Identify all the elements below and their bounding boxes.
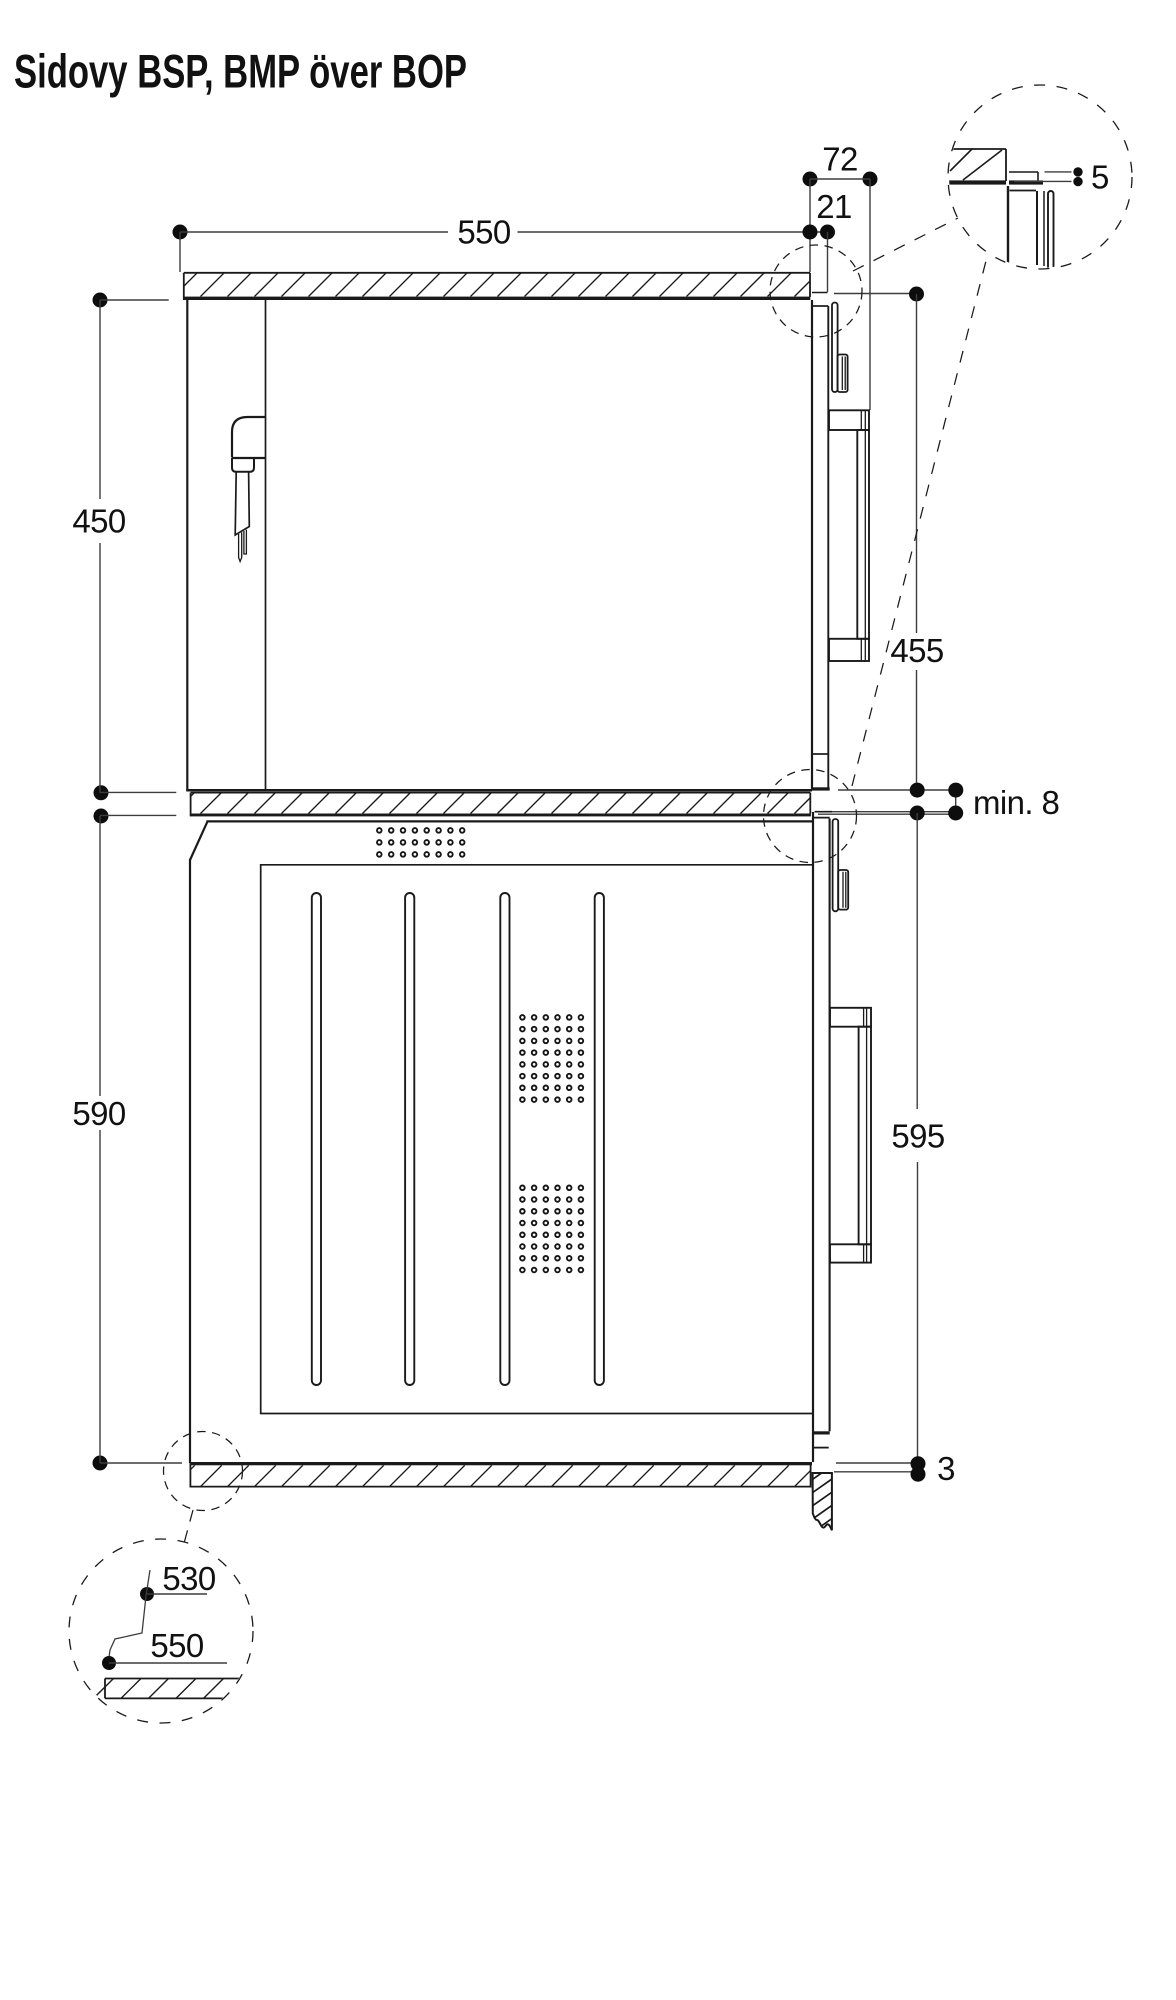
svg-text:72: 72: [822, 141, 858, 178]
svg-text:450: 450: [72, 502, 126, 539]
svg-text:min. 8: min. 8: [973, 784, 1059, 821]
svg-text:590: 590: [72, 1095, 126, 1132]
svg-text:Sidovy BSP, BMP över BOP: Sidovy BSP, BMP över BOP: [14, 45, 467, 98]
svg-text:550: 550: [457, 213, 511, 250]
svg-text:21: 21: [816, 188, 852, 225]
svg-text:595: 595: [891, 1118, 944, 1155]
svg-text:530: 530: [162, 1560, 216, 1597]
svg-text:550: 550: [150, 1627, 204, 1664]
svg-text:3: 3: [937, 1450, 955, 1487]
svg-text:455: 455: [890, 632, 943, 669]
svg-text:5: 5: [1091, 159, 1109, 196]
